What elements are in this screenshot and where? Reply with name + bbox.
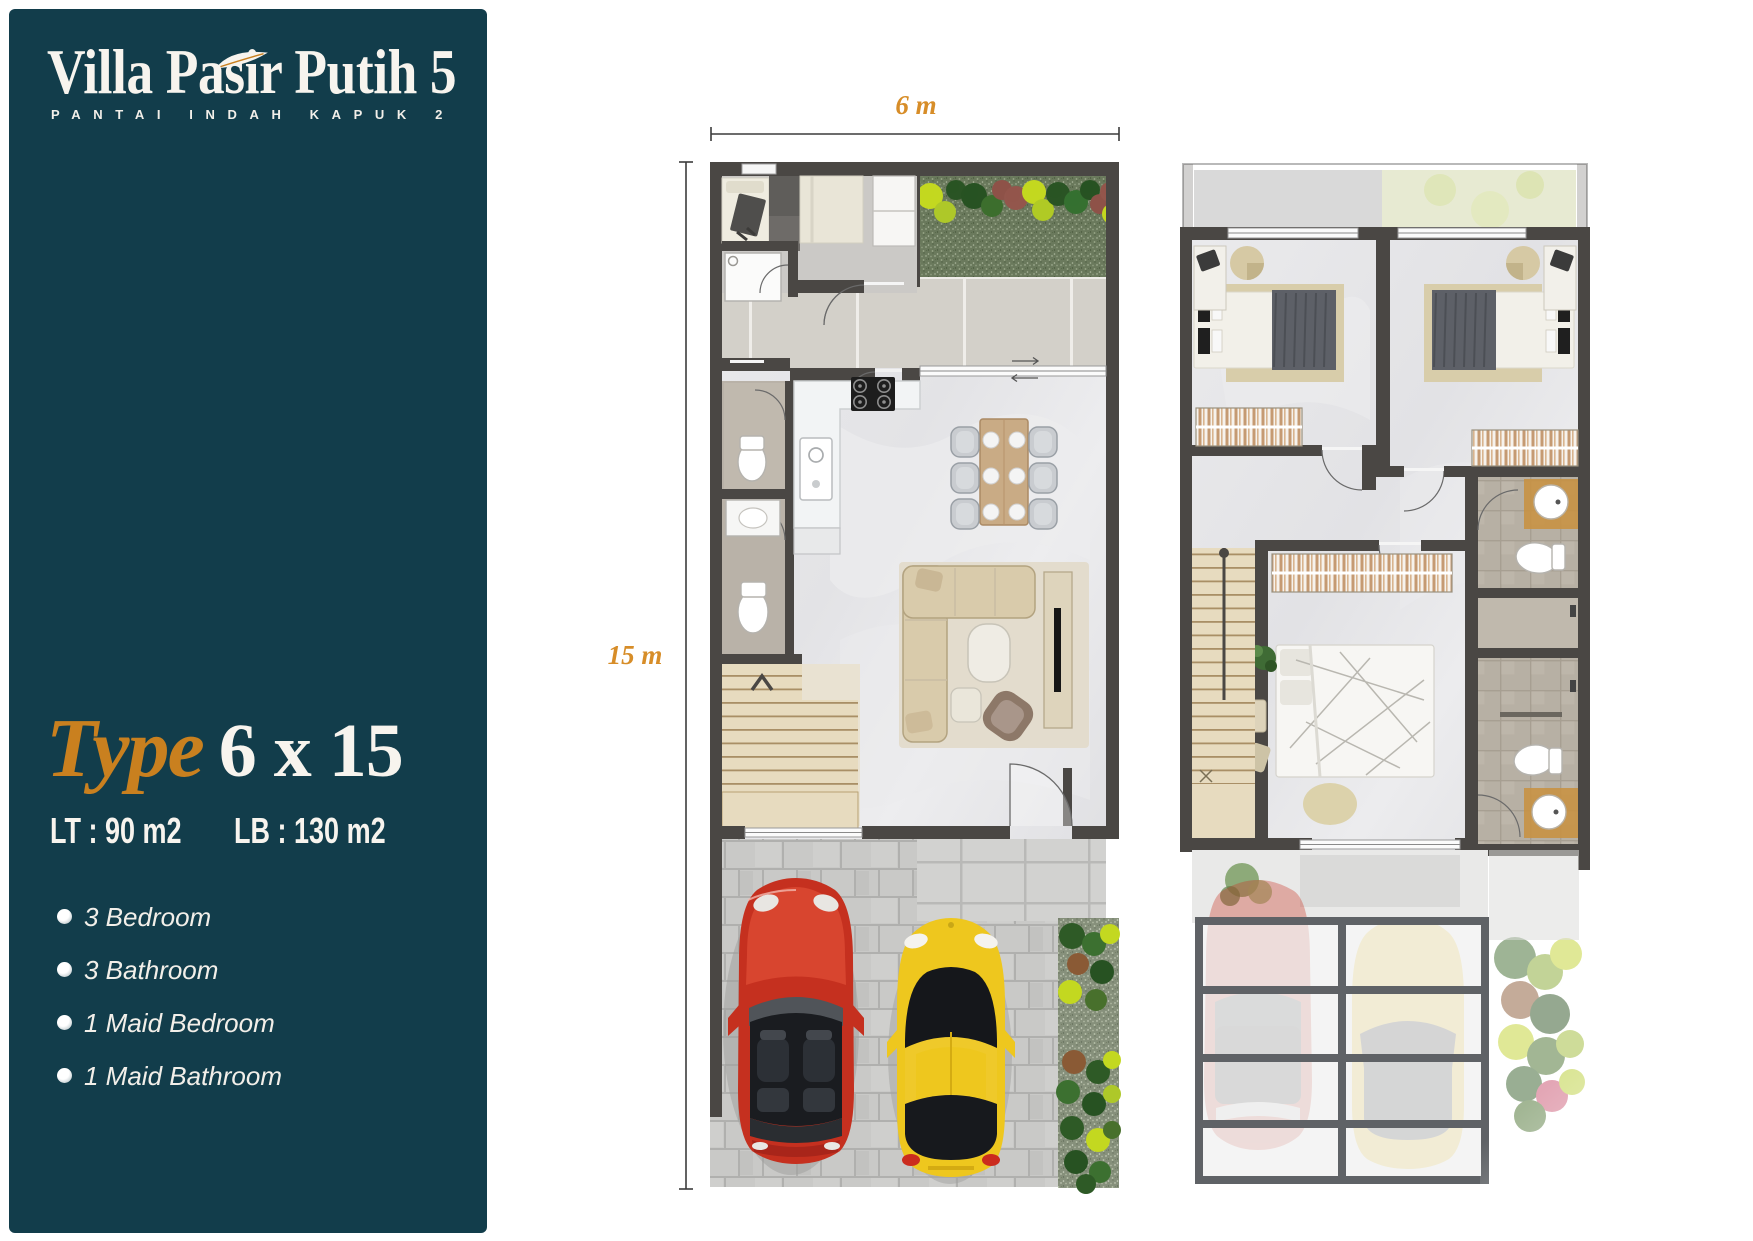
svg-text:6 m: 6 m [895,90,936,120]
svg-text:15 m: 15 m [608,640,663,670]
